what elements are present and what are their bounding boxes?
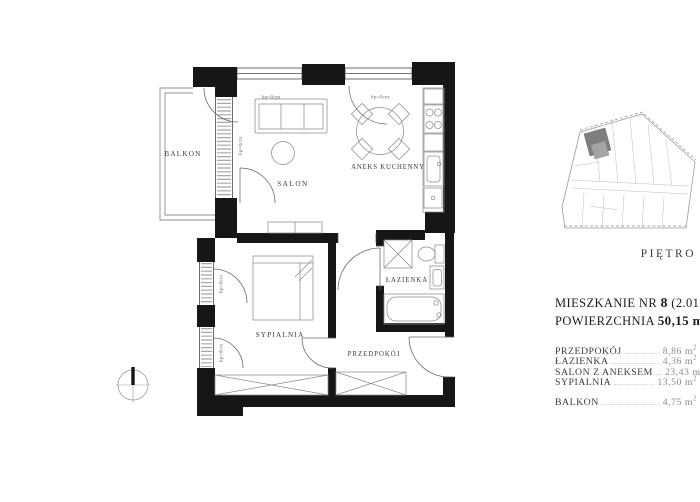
sill-label-top-window-2: hp=0cm [371,95,390,101]
apartment-title-prefix: MIESZKANIE NR [555,296,657,310]
area-unit: m [693,313,700,328]
apartment-number: 8 [661,295,668,310]
room-label-balkon: BALKON [164,150,201,158]
apartment-title-suffix: (2.01) [671,296,700,310]
floor-key-plan [560,106,698,238]
room-area-unit: m [685,397,693,408]
north-arrow-icon [116,367,150,403]
room-label-sypialnia: SYPIALNIA [256,331,305,339]
room-area-value: 4,75 [663,397,682,408]
apartment-info-panel: MIESZKANIE NR 8 (2.01) POWIERZCHNIA 50,1… [555,294,697,408]
room-label-lazienka: ŁAZIENKA [386,277,428,284]
room-label-salon: SALON [277,180,308,188]
room-area-value: 13,50 [657,377,682,388]
room-area-unit-sup: 2 [693,395,697,403]
leader-dots [625,353,660,354]
room-area-list: PRZEDPOKÓJ 8,86 m2 ŁAZIENKA 4,36 m2 SALO… [555,347,697,408]
room-area-unit-sup: 2 [693,344,697,352]
salon-west-glazing [216,97,233,198]
room-name: SYPIALNIA [555,378,611,388]
apartment-total-area: POWIERZCHNIA 50,15 m2) [555,312,697,330]
floor-plan-drawing: BALKON SALON ANEKS KUCHENNY ŁAZIENKA SYP… [0,0,520,460]
leader-dots [612,363,660,364]
room-area-unit-sup: 2 [693,354,697,362]
room-label-przedpokoj: PRZEDPOKÓJ [348,350,401,358]
leader-dots [602,404,660,405]
area-label: POWIERZCHNIA [555,314,654,328]
leader-dots [656,374,662,375]
sill-label-bedroom-window-2: hp=0cm [219,343,225,362]
room-area-unit-sup: 2 [693,375,697,383]
sill-label-top-window-1: hp=0cm [262,95,281,101]
floor-caption: PIĘTRO [560,248,696,260]
room-name: BALKON [555,398,599,408]
room-row-balkon: BALKON 4,75 m2 [555,398,697,408]
room-label-aneks-kuchenny: ANEKS KUCHENNY [351,164,425,171]
area-value: 50,15 [658,313,689,328]
room-area-unit: m [685,377,693,388]
apartment-title: MIESZKANIE NR 8 (2.01) [555,294,697,312]
sill-label-balcony-door: hp=0cm [238,136,244,155]
sill-label-bedroom-window-1: hp=0cm [219,274,225,293]
room-row-sypialnia: SYPIALNIA 13,50 m2 [555,378,697,388]
leader-dots [614,384,654,385]
